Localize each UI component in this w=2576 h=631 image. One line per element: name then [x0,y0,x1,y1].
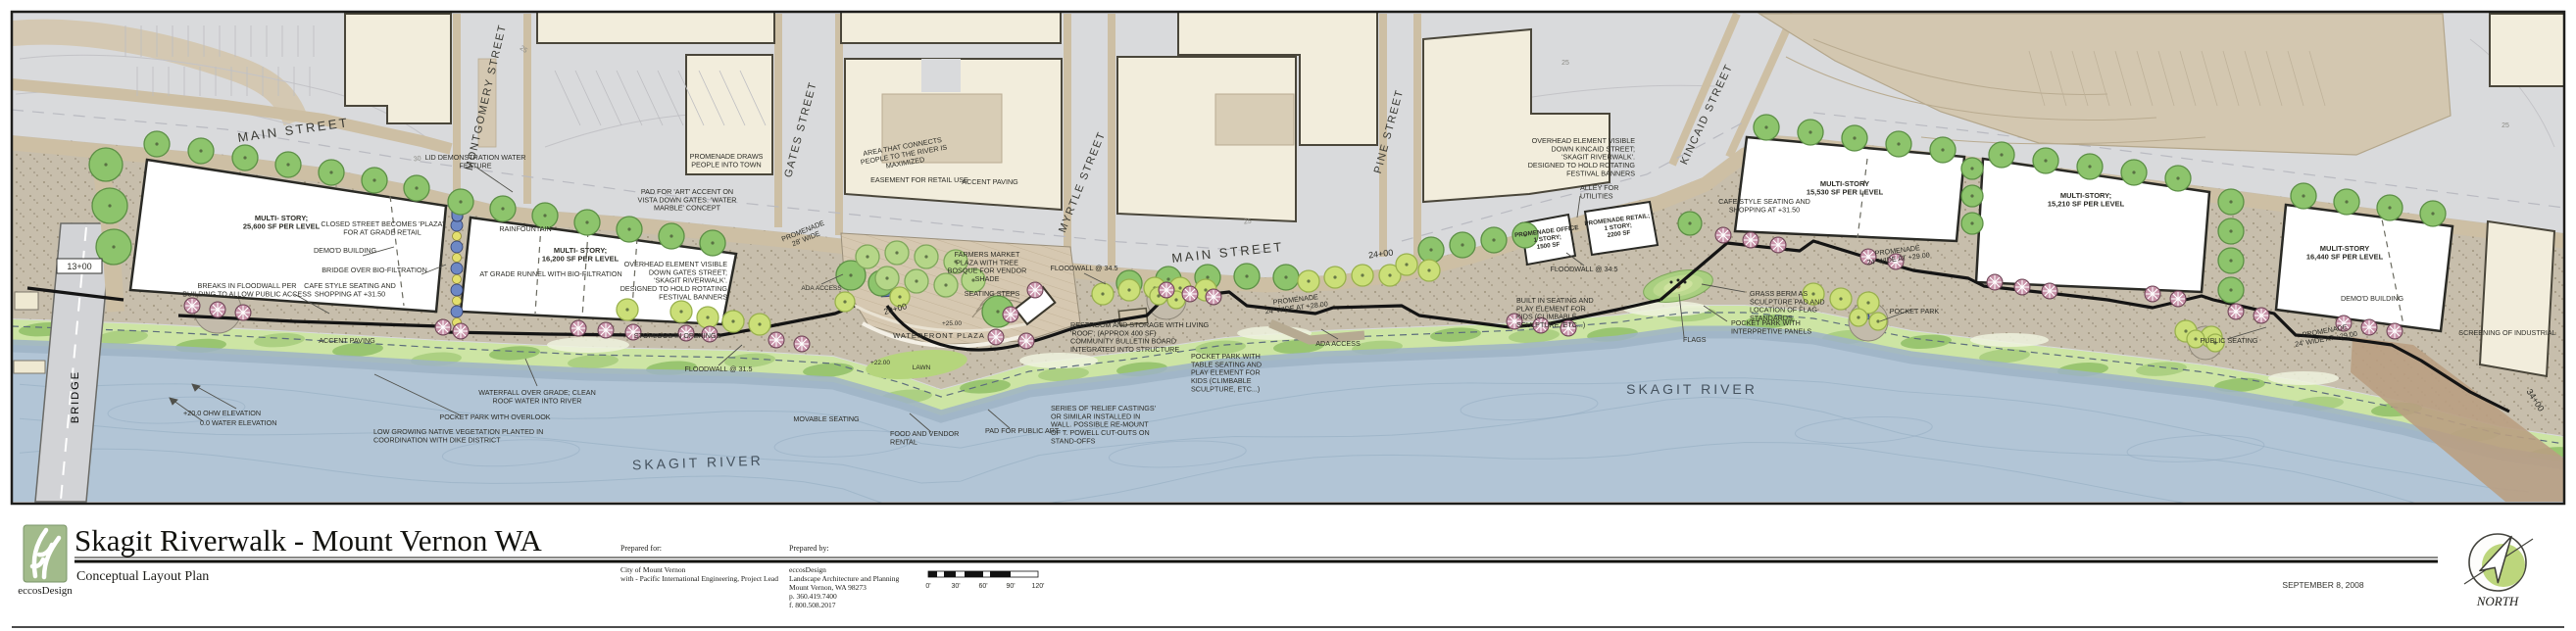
north-arrow-icon: NORTH [2464,531,2533,608]
scale-label: 0' [925,583,930,590]
plan-annotation: WATERFRONT PLAZA [893,331,985,340]
plan-annotation: FLOODWALL @ 31.5 [684,364,752,373]
eccos-logo: eccosDesign [18,525,73,597]
plan-annotation: CAFE STYLE SEATING ANDSHOPPING AT +31.50 [304,281,396,298]
block-2 [537,12,774,43]
plan-annotation: SKAGIT RIVER [1626,381,1758,397]
plan-annotation: +25.00 [942,320,962,327]
prepared-for-label: Prepared for: [620,544,662,553]
plan-annotation: FLOODWALL @ 34.5 [1550,265,1617,273]
plan-annotation: AT GRADE RUNNEL WITH BIO-FILTRATION [479,269,621,278]
plan-annotation: BRIDGE OVER BIO-FILTRATION [322,266,427,274]
block-4 [841,12,1061,43]
prepared-by-line-1: eccosDesign [789,565,826,574]
plan-annotation: MOVABLE SEATING [793,414,860,423]
plan-annotation: BUILT IN SEATING ANDPLAY ELEMENT FORKIDS… [1516,296,1594,329]
plan-annotation: ALLEY FORUTILITIES [1580,183,1618,200]
plan-annotation: FLOODWALL @ 34.5 [1050,264,1117,272]
plan-annotation: STOPLOGS IN OPENINGS [634,331,721,340]
prepared-by-line-4: p. 360.419.7400 [789,592,837,601]
plan-annotation: CAFE STYLE SEATING ANDSHOPPING AT +31.50 [1718,197,1810,214]
plan-annotation: ADA ACCESS [1315,339,1361,348]
plan-annotation: 13+00 [67,262,91,271]
plan-annotation: POCKET PARK WITH OVERLOOK [439,413,550,421]
plan-annotation: 25 [1561,60,1569,67]
scale-label: 120' [1031,583,1044,590]
plan-annotation: ADA ACCESS [801,285,842,292]
plan-annotation: +20.0 OHW ELEVATION [183,409,261,417]
plan-annotation: RAINFOUNTAIN [499,224,551,233]
title-block: eccosDesign Skagit Riverwalk - Mount Ver… [12,523,2564,627]
plan-annotation: 25 [1244,218,1253,226]
scale-label: 60' [978,583,987,590]
plan-annotation: 25 [2502,122,2509,129]
prepared-by-line-5: f. 800.508.2017 [789,601,836,609]
prepared-for-line-1: City of Mount Vernon [620,565,686,574]
prepared-by-line-3: Mount Vernon, WA 98273 [789,583,867,592]
plan-annotation: EASEMENT FOR RETAIL USE [870,175,968,184]
scale-label: 90' [1006,583,1015,590]
plan-annotation: +22.00 [870,360,890,366]
sheet-subtitle: Conceptual Layout Plan [76,569,209,584]
plan-annotation: 0.0 WATER ELEVATION [200,418,276,427]
site-plan: MAIN STREETMAIN STREETMONTGOMERY STREETG… [0,0,2576,631]
scale-bar: 0'30'60'90'120' [925,571,1044,590]
prepared-by-label: Prepared by: [789,544,829,553]
plan-annotation: 30 [413,155,421,163]
plan-annotation: ACCENT PAVING [962,177,1018,186]
plan-annotation: BREAKS IN FLOODWALL PERBUILDING TO ALLOW… [182,281,312,298]
plan-annotation: POCKET PARK [1890,307,1940,315]
plan-annotation: PUBLIC SEATING [2201,336,2258,345]
plan-annotation: BRIDGE [70,370,81,423]
scale-label: 30' [951,583,960,590]
plan-annotation: PROMENADE DRAWSPEOPLE INTO TOWN [690,152,764,169]
plan-annotation: ACCENT PAVING [319,336,375,345]
block-6-court [1215,94,1294,145]
plan-annotation: POCKET PARK WITHTABLE SEATING ANDPLAY EL… [1191,352,1262,393]
screening-building [2480,221,2554,376]
plan-annotation: FLAGS [1683,335,1707,344]
block-10 [2490,14,2564,86]
plan-annotation: SCREENING OF INDUSTRIAL [2458,328,2555,337]
sheet-title: Skagit Riverwalk - Mount Vernon WA [74,523,542,558]
plan-annotation: PAD FOR PUBLIC ART [985,426,1060,435]
block-5-alley [921,59,961,92]
plan-annotation: SEATING STEPS [965,289,1020,298]
plan-annotation: LAWN [913,364,931,371]
prepared-by-line-2: Landscape Architecture and Planning [789,574,900,583]
plan-annotation: DEMO'D BUILDING [2341,294,2403,303]
north-label: NORTH [2476,594,2519,608]
logo-text: eccosDesign [18,585,73,597]
runnel-bio-filtration [451,219,463,327]
prepared-for-line-2: with - Pacific International Engineering… [620,574,778,583]
plan-annotation: POCKET PARK WITHINTERPRETIVE PANELS [1731,318,1811,335]
sheet-date: SEPTEMBER 8, 2008 [2282,580,2363,590]
plan-sheet: { "title_block": { "logo_text": "eccosDe… [0,0,2576,631]
plan-annotation: DEMO'D BUILDING [314,246,376,255]
plan-annotation: WATERFALL OVER GRADE; CLEANROOF WATER IN… [478,388,596,405]
